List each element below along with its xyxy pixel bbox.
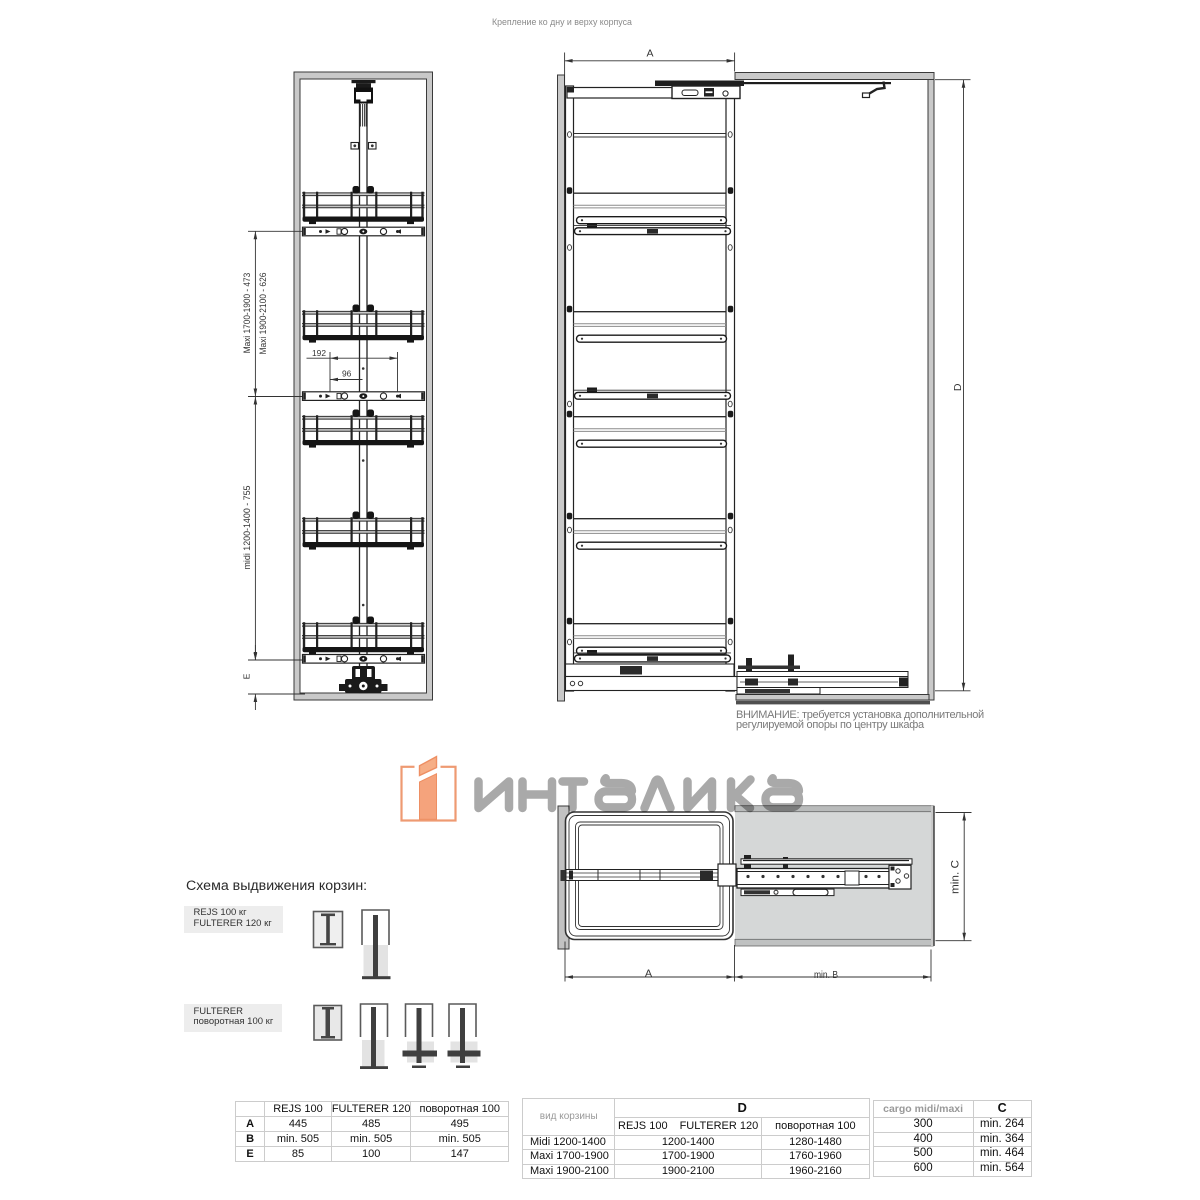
svg-text:192: 192 — [312, 348, 326, 358]
svg-text:Maxi 1900-2100 - 626: Maxi 1900-2100 - 626 — [258, 273, 268, 355]
svg-text:Maxi 1700-1900 - 473: Maxi 1700-1900 - 473 — [242, 273, 252, 354]
svg-text:A: A — [645, 967, 652, 979]
svg-text:D: D — [952, 383, 964, 391]
svg-text:E: E — [242, 673, 252, 679]
svg-text:A: A — [646, 48, 653, 60]
svg-text:96: 96 — [342, 369, 352, 379]
svg-text:min. B: min. B — [814, 969, 838, 981]
svg-text:min. C: min. C — [950, 860, 962, 894]
svg-text:midi 1200-1400 - 755: midi 1200-1400 - 755 — [242, 486, 252, 570]
